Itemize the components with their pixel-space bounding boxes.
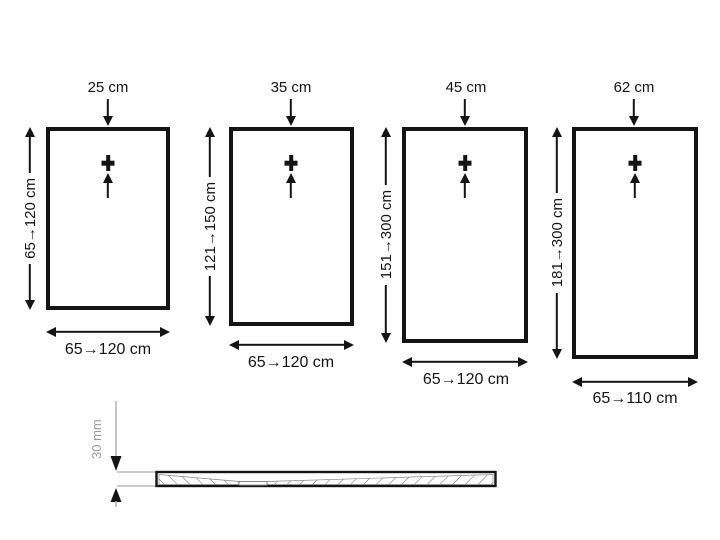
down-arrow-icon bbox=[628, 99, 640, 126]
down-arrow-icon bbox=[102, 99, 114, 126]
length-range-label: 65→120 cm bbox=[23, 178, 38, 259]
arrow-head bbox=[629, 116, 639, 126]
arrow-line bbox=[634, 181, 636, 198]
down-arrow-icon bbox=[459, 99, 471, 126]
up-arrow-icon bbox=[629, 173, 641, 198]
arrow-head bbox=[205, 316, 215, 326]
width-dimension-arrow bbox=[46, 326, 170, 338]
arrow-line bbox=[385, 285, 387, 335]
arrow-head bbox=[286, 116, 296, 126]
dimension-arrow-up bbox=[204, 127, 216, 177]
thickness-label: 30 mm bbox=[88, 401, 105, 459]
length-dimension: 181→300 cm bbox=[540, 127, 574, 359]
thickness-arrow-up bbox=[111, 488, 122, 502]
up-arrow-icon bbox=[459, 173, 471, 198]
dimension-arrow-down bbox=[204, 276, 216, 326]
arrow-line bbox=[29, 135, 31, 173]
arrow-head bbox=[286, 173, 296, 183]
arrow-head bbox=[460, 173, 470, 183]
diagram-canvas: 25 cm 65→120 cm 65→120 cm 35 cm bbox=[0, 0, 720, 540]
arrow-head-right bbox=[160, 327, 170, 337]
arrow-head-right bbox=[518, 357, 528, 367]
arrow-head bbox=[205, 127, 215, 137]
arrow-line bbox=[290, 181, 292, 198]
arrow-head bbox=[552, 127, 562, 137]
arrow-head bbox=[381, 127, 391, 137]
up-arrow-icon bbox=[285, 173, 297, 198]
down-arrow-icon bbox=[285, 99, 297, 126]
arrow-head-left bbox=[402, 357, 412, 367]
drain-cross-icon bbox=[285, 155, 298, 171]
width-range-label: 65→120 cm bbox=[65, 342, 151, 358]
arrow-line bbox=[236, 344, 347, 346]
arrow-head-left bbox=[46, 327, 56, 337]
drain-offset-label: 35 cm bbox=[271, 80, 312, 95]
width-range-label: 65→120 cm bbox=[423, 372, 509, 388]
arrow-head-right bbox=[688, 377, 698, 387]
arrow-line bbox=[209, 276, 211, 318]
width-dimension-arrow bbox=[229, 339, 354, 351]
length-dimension: 121→150 cm bbox=[193, 127, 227, 326]
drain-offset-label: 45 cm bbox=[446, 80, 487, 95]
arrow-line bbox=[53, 331, 163, 333]
arrow-line bbox=[556, 293, 558, 351]
drain-cross-icon bbox=[102, 155, 115, 171]
arrow-head bbox=[103, 116, 113, 126]
arrow-head bbox=[381, 333, 391, 343]
dimension-arrow-up bbox=[24, 127, 36, 173]
arrow-head-left bbox=[572, 377, 582, 387]
arrow-head bbox=[25, 300, 35, 310]
width-range-label: 65→120 cm bbox=[248, 355, 334, 371]
drain-cross-icon bbox=[629, 155, 642, 171]
dimension-arrow-down bbox=[24, 264, 36, 310]
width-range-label: 65→110 cm bbox=[592, 391, 677, 407]
cross-section-drawing bbox=[60, 393, 510, 513]
dimension-arrow-up bbox=[380, 127, 392, 185]
dimension-arrow-down bbox=[551, 293, 563, 359]
arrow-head bbox=[552, 349, 562, 359]
arrow-head bbox=[25, 127, 35, 137]
arrow-line bbox=[556, 135, 558, 193]
thickness-arrow-down bbox=[111, 456, 122, 471]
arrow-head bbox=[460, 116, 470, 126]
arrow-line bbox=[464, 181, 466, 198]
length-dimension: 151→300 cm bbox=[369, 127, 403, 343]
dimension-arrow-down bbox=[380, 285, 392, 343]
drain-offset-label: 25 cm bbox=[88, 80, 129, 95]
arrow-line bbox=[579, 381, 691, 383]
arrow-line bbox=[107, 181, 109, 198]
arrow-line bbox=[29, 264, 31, 302]
arrow-head bbox=[630, 173, 640, 183]
drain-outline bbox=[239, 482, 267, 486]
length-range-label: 121→150 cm bbox=[203, 182, 218, 271]
width-dimension-arrow bbox=[572, 376, 698, 388]
width-dimension-arrow bbox=[402, 356, 528, 368]
up-arrow-icon bbox=[102, 173, 114, 198]
drain-cross-icon bbox=[459, 155, 472, 171]
arrow-line bbox=[409, 361, 521, 363]
arrow-head-right bbox=[344, 340, 354, 350]
arrow-line bbox=[209, 135, 211, 177]
arrow-head-left bbox=[229, 340, 239, 350]
dimension-arrow-up bbox=[551, 127, 563, 193]
length-range-label: 181→300 cm bbox=[550, 198, 565, 287]
drain-offset-label: 62 cm bbox=[614, 80, 655, 95]
length-dimension: 65→120 cm bbox=[13, 127, 47, 310]
arrow-head bbox=[103, 173, 113, 183]
arrow-line bbox=[385, 135, 387, 185]
length-range-label: 151→300 cm bbox=[379, 190, 394, 279]
